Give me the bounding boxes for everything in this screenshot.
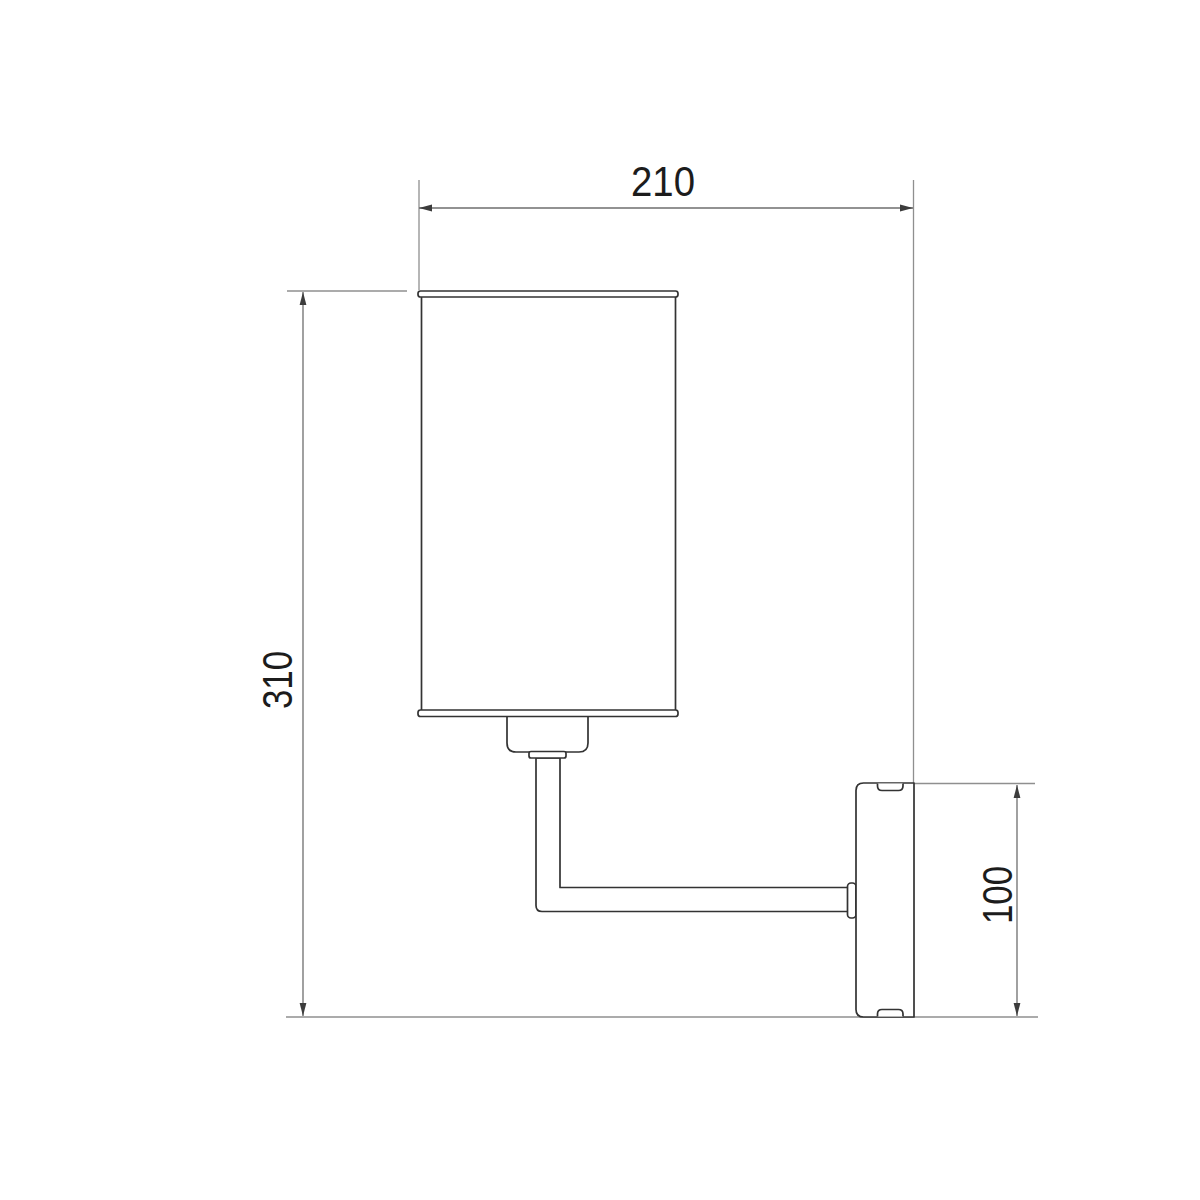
wall-plate bbox=[856, 783, 914, 1017]
dimension-overall-height: 310 bbox=[254, 292, 307, 1016]
wall-lamp bbox=[418, 291, 914, 1017]
socket-collar bbox=[529, 752, 566, 759]
arm-flange bbox=[848, 883, 857, 918]
arrowhead-left-icon bbox=[419, 205, 432, 212]
arrowhead-down-icon bbox=[300, 1003, 307, 1016]
arrowhead-right-icon bbox=[900, 205, 913, 212]
arrowhead-up-icon bbox=[1014, 785, 1021, 798]
dimension-shade-width: 210 bbox=[419, 158, 913, 211]
arrowhead-up-icon bbox=[300, 292, 307, 305]
shade-top-rim bbox=[418, 291, 678, 297]
lamp-arm bbox=[536, 758, 849, 912]
dimension-label-width: 210 bbox=[631, 158, 695, 205]
lamp-socket bbox=[507, 716, 588, 752]
shade-bottom-rim bbox=[418, 710, 678, 717]
technical-drawing: 210 310 100 bbox=[0, 0, 1200, 1200]
screw-slot-top bbox=[878, 784, 904, 791]
dimension-label-height: 310 bbox=[254, 651, 301, 709]
drawing-canvas: 210 310 100 bbox=[0, 0, 1200, 1200]
dimension-plate-height: 100 bbox=[974, 785, 1021, 1016]
arrowhead-down-icon bbox=[1014, 1003, 1021, 1016]
screw-slot-bottom bbox=[878, 1010, 904, 1017]
lamp-shade-body bbox=[422, 294, 676, 714]
dimension-label-plate: 100 bbox=[974, 866, 1021, 924]
